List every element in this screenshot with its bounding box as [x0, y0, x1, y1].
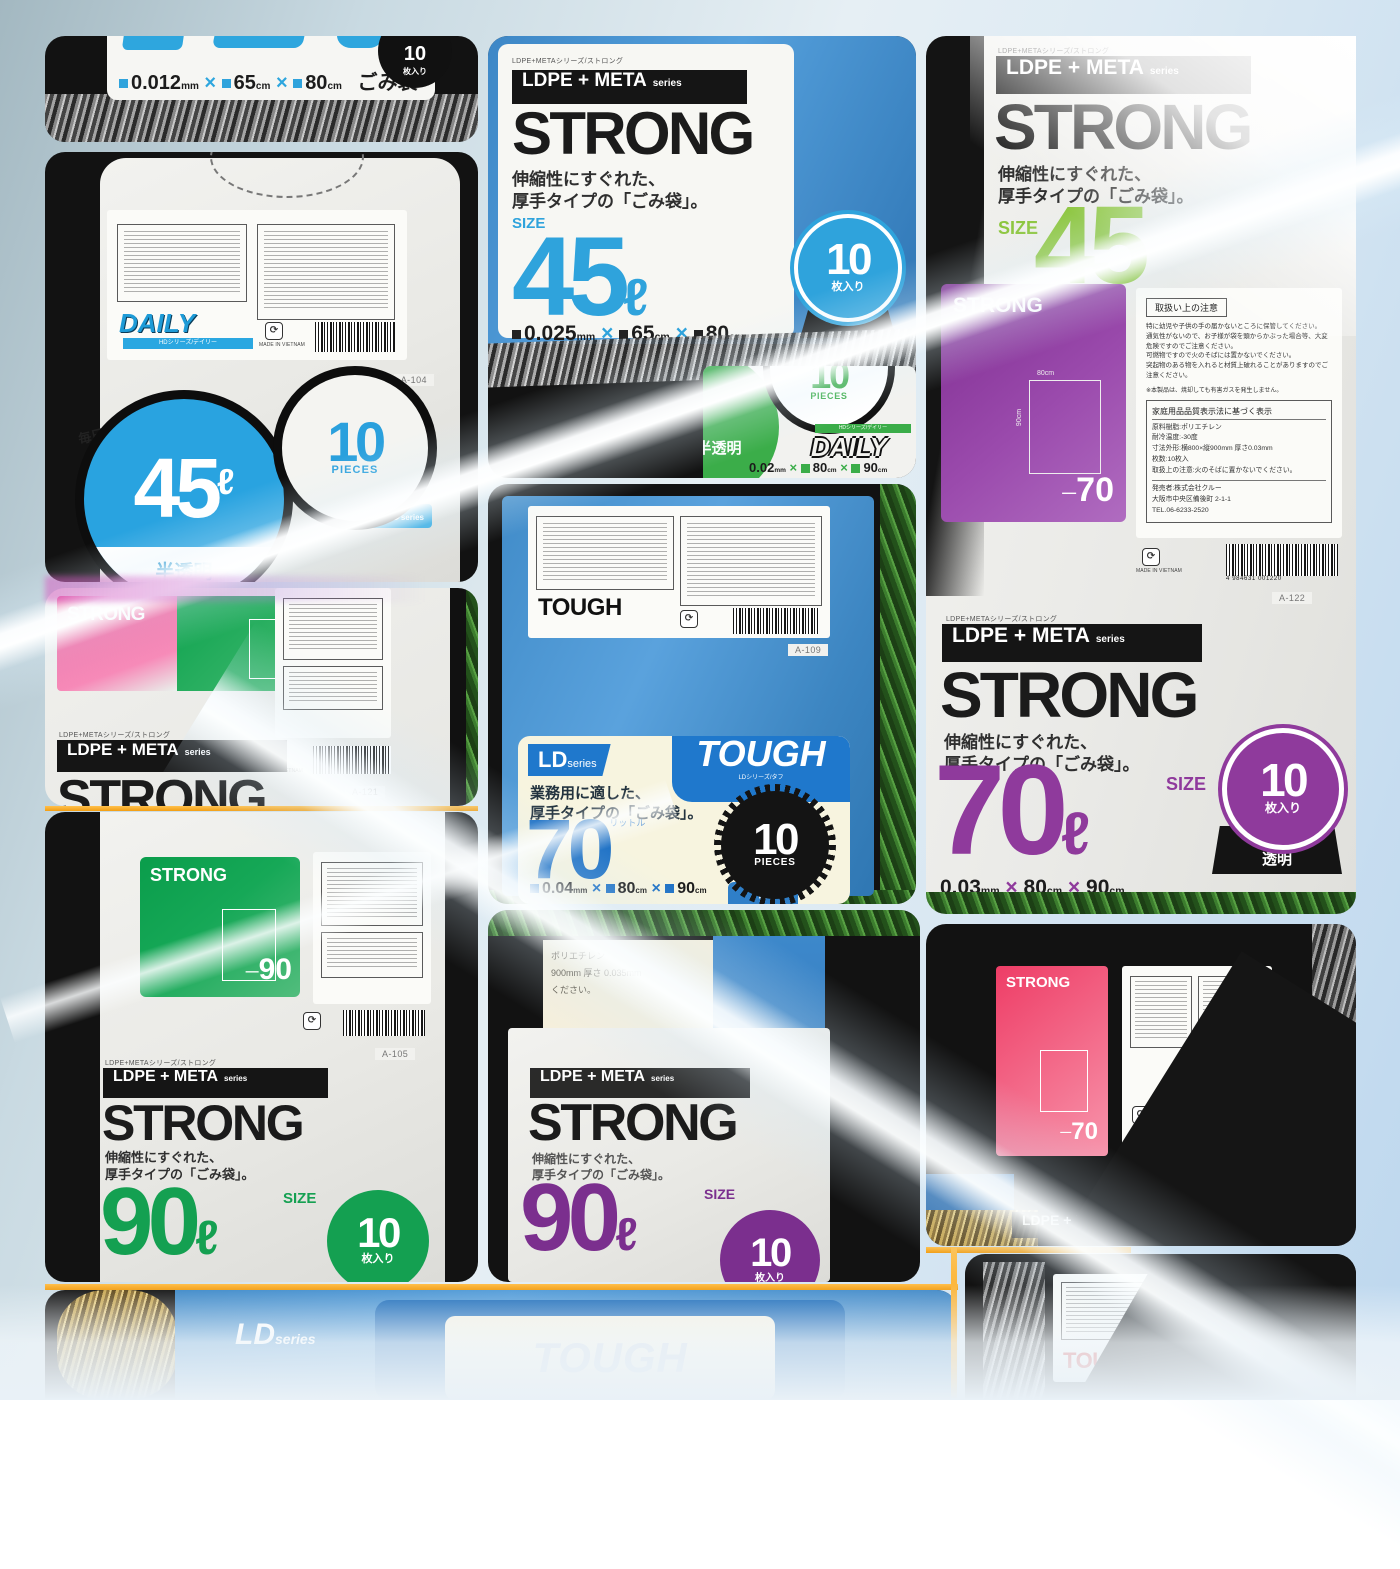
photo-strong90-green: STRONG ―90 ⟳ A-105 LDPE+METAシリーズ/ストロング L… — [45, 812, 478, 1282]
series-banner: LDPE + METAseries — [942, 624, 1202, 662]
pink-strong-label: STRONG — [57, 596, 177, 691]
care-title: 取扱い上の注意 — [1146, 298, 1227, 317]
unit-chip-icon — [606, 884, 615, 893]
series-tiny-text: LDPE+METAシリーズ/ストロング — [998, 46, 1109, 56]
tough-back-logo: TOUGH — [538, 594, 622, 622]
count-circle: 10 枚入り — [794, 214, 902, 322]
partial-blue-glyph — [212, 36, 312, 48]
care-bullets: 特に幼児や子供の手の届かないところに保管してください。 通気性がないので、お子様… — [1146, 322, 1332, 381]
blue-package: LDseries TOUGH — [175, 1290, 955, 1400]
series-banner: LDPE + METAseries — [996, 56, 1251, 94]
back-label — [275, 588, 391, 738]
grass-background — [466, 588, 478, 806]
care-box — [117, 224, 247, 302]
pieces-sunburst: 10 PIECES — [714, 784, 836, 904]
barcode — [313, 746, 391, 774]
unit-chip-icon — [665, 884, 674, 893]
finish-band: 半透明 — [90, 547, 278, 582]
size-group: 70ℓ — [934, 760, 1090, 868]
barcode-digits: 4 984631 001220 — [1226, 576, 1282, 582]
strong-wordmark: STRONG — [940, 666, 1197, 725]
photo-bottom-tough: LDseries TOUGH — [45, 1290, 957, 1400]
barcode — [315, 322, 395, 352]
gold-foil — [57, 1290, 177, 1400]
strong-wordmark: STRONG — [102, 1100, 302, 1146]
size-label: SIZE — [1166, 774, 1206, 795]
foil-texture — [45, 94, 478, 142]
item-code-tag: A-121 — [345, 786, 385, 798]
unit-chip-icon — [737, 464, 746, 473]
size-label: SIZE — [998, 218, 1038, 239]
count-circle: 10 枚入り — [327, 1190, 429, 1282]
photo-right-strong: LDPE+METAシリーズ/ストロング LDPE + METAseries ST… — [926, 36, 1356, 914]
plastic-recycling-icon: ⟳ — [680, 610, 698, 628]
ld-series-text: LDseries — [235, 1318, 315, 1352]
size-group: SIZE 45ℓ — [512, 215, 794, 328]
front-label: LDPE+METAシリーズ/ストロング LDPE + METAseries ST… — [498, 44, 794, 338]
spec-line: 0.02mm × 80cm × 90cm — [737, 460, 887, 475]
made-in-text: MADE IN VIETNAM — [1136, 568, 1182, 574]
photo-strong70-back: STRONG ―70 ⟳ MADE IN VIETNAM A-121 LDPE+… — [45, 588, 478, 806]
photo-top-left-package: 0.012mm × 65cm × 80cm ごみ袋 10 枚入り — [45, 36, 478, 142]
series-tiny-text: LDPE+METAシリーズ/ストロング — [59, 730, 170, 740]
unit-chip-icon — [851, 464, 860, 473]
daily-logo: DAILY — [811, 432, 887, 463]
item-code-tag: A-105 — [375, 1048, 415, 1060]
photo-strong90-purple: ポリエチレン 900mm 厚さ 0.035mm ください。 LDPE + MET… — [488, 910, 920, 1282]
photo-black-strong70: STRONG ―70 ⟳ A-119 LDPE + METAseries — [926, 924, 1356, 1246]
unit-chip-icon — [801, 464, 810, 473]
grid-accent-line — [45, 1284, 958, 1290]
series-tiny-text: LDPE+METAシリーズ/ストロング — [105, 1058, 216, 1068]
black-bag-edge — [450, 588, 466, 806]
back-label: TOUGH ⟳ — [528, 506, 830, 638]
size-label: SIZE — [283, 1190, 316, 1207]
photo-tough-back: TOUGH ⟳ — [965, 1254, 1356, 1400]
series-banner: LDPE + METAseries — [103, 1068, 328, 1098]
strong-wordmark: STRONG — [994, 98, 1251, 157]
plastic-recycling-icon: ⟳ — [303, 1012, 321, 1030]
pieces-circle: 10 PIECES — [273, 366, 437, 530]
strong-wordmark: STRONG — [512, 106, 794, 161]
back-label — [313, 852, 431, 1004]
purple-strong-label: STRONG 80cm 90cm ―70 — [941, 284, 1126, 522]
daily-green-fragment: 半透明 10 PIECES HDシリーズ/デイリー DAILY 0.02mm ×… — [703, 366, 916, 478]
item-code-tag: A-109 — [788, 644, 828, 656]
unit-chip-icon — [512, 330, 521, 339]
strong-wordmark-partial: STRONG — [57, 776, 265, 806]
unit-chip-icon — [293, 79, 302, 88]
product-description: 伸縮性にすぐれた、厚手タイプの「ごみ袋」。 — [512, 169, 794, 213]
item-code-tag: A-122 — [1272, 592, 1312, 604]
grid-accent-line — [951, 1247, 957, 1400]
foil-texture — [983, 1262, 1045, 1400]
barcode — [343, 1010, 425, 1036]
series-banner: LDPE + METAseries — [512, 70, 747, 104]
partial-blue-glyph — [122, 36, 188, 50]
grid-accent-line — [45, 806, 478, 811]
back-label-fragment: ポリエチレン 900mm 厚さ 0.035mm ください。 — [543, 940, 713, 1032]
photo-collage: 0.012mm × 65cm × 80cm ごみ袋 10 枚入り DAILY — [0, 0, 1400, 1400]
size-group: 90ℓ — [520, 1180, 638, 1261]
photo-strong45-blue: LDPE+METAシリーズ/ストロング LDPE + METAseries ST… — [488, 36, 916, 478]
daily-logo: DAILY — [119, 308, 195, 339]
back-label: DAILY HDシリーズ/デイリー ⟳ MADE IN VIETNAM — [107, 210, 407, 360]
unit-chip-icon — [530, 884, 539, 893]
grass-background — [880, 484, 916, 904]
series-banner: LDPE + METAseries — [57, 740, 287, 772]
size-label: SIZE — [704, 1186, 735, 1202]
photo-daily-45: DAILY HDシリーズ/デイリー ⟳ MADE IN VIETNAM A-10… — [45, 152, 478, 582]
hanger-hole — [210, 152, 364, 198]
barcode — [1226, 544, 1338, 576]
grass-background — [488, 910, 920, 936]
barcode — [733, 608, 819, 634]
photo-tough-70: TOUGH ⟳ A-109 TOUGH LDシリーズ/タフ LDseries 業… — [488, 484, 916, 904]
tough-label: TOUGH — [445, 1316, 775, 1400]
series-tiny-text: LDPE+METAシリーズ/ストロング — [946, 614, 1057, 624]
front-label: TOUGH LDシリーズ/タフ LDseries 業務用に適した、厚手タイプの「… — [518, 736, 850, 904]
quality-box — [257, 224, 395, 320]
partial-blue-glyph — [337, 36, 383, 48]
size-number-lime: 45 — [1034, 202, 1143, 290]
ld-series-banner: LDseries — [528, 744, 611, 776]
size-group: 90ℓ — [100, 1184, 219, 1266]
daily-logo-bar: HDシリーズ/デイリー — [123, 338, 253, 349]
made-in-text: MADE IN VIETNAM — [259, 342, 305, 348]
pink-strong-label: STRONG ―70 — [996, 966, 1108, 1156]
series-tiny-text: LDPE+METAシリーズ/ストロング — [512, 56, 794, 66]
care-note: ※本製品は、焼却しても有害ガスを発生しません。 — [1146, 385, 1332, 394]
count-circle: 10 枚入り — [720, 1210, 820, 1282]
spec-line: 0.012mm × 65cm × 80cm ごみ袋 — [119, 66, 417, 95]
unit-chip-icon — [119, 79, 128, 88]
green-strong-label: STRONG ―90 — [140, 857, 300, 997]
count-circle: 10 枚入り — [1222, 728, 1344, 850]
spec-line: 0.04mm × 80cm × 90cm — [530, 880, 707, 898]
quality-box: 家庭用品品質表示法に基づく表示 原料樹脂:ポリエチレン 耐冷温度:-30度 寸法… — [1146, 400, 1332, 523]
care-label: 取扱い上の注意 特に幼児や子供の手の届かないところに保管してください。 通気性が… — [1136, 288, 1342, 538]
plastic-recycling-icon: ⟳ — [1142, 548, 1160, 566]
white-bag: LDPE + METAseries STRONG 伸縮性にすぐれた、厚手タイプの… — [508, 1028, 830, 1282]
grass-background — [926, 892, 1356, 914]
unit-chip-icon — [222, 79, 231, 88]
plastic-recycling-icon: ⟳ — [265, 322, 283, 340]
strong-wordmark: STRONG — [528, 1100, 736, 1148]
size-group: 70リットル — [526, 816, 645, 889]
